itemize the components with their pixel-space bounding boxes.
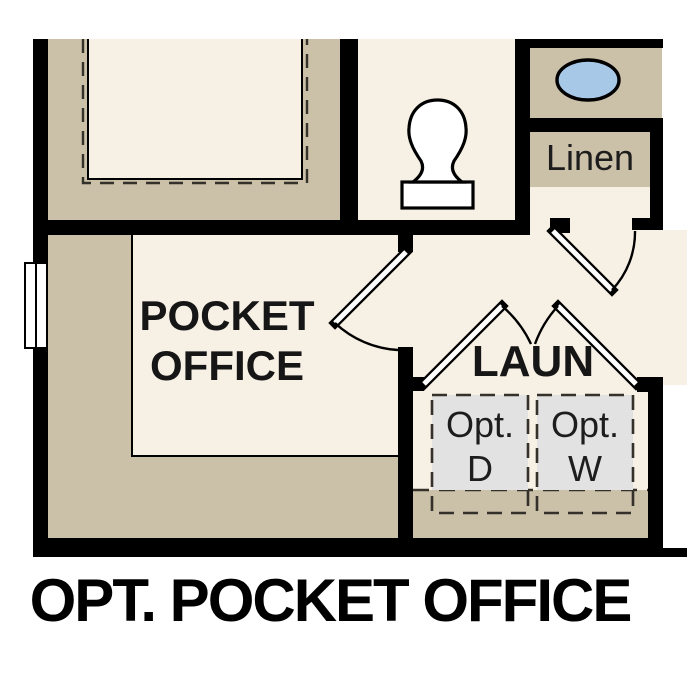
pocket-office-label-line2: OFFICE [97,341,357,391]
optional-dryer-label: Opt. D [432,395,528,499]
optional-dryer-label-line1: Opt. [446,403,514,447]
floor-plan: POCKET OFFICE LAUN Linen Opt. D Opt. W O… [0,0,687,687]
pocket-office-label-line1: POCKET [97,291,357,341]
optional-washer-label: Opt. W [537,395,633,499]
optional-washer-label-line1: Opt. [551,403,619,447]
linen-door [553,231,635,290]
sink-icon [557,60,619,100]
laundry-label: LAUN [433,340,633,384]
linen-door-swing-arc [612,231,635,290]
toilet-icon [402,100,473,208]
bedroom-dashed-outline [83,39,307,183]
linen-label: Linen [530,138,650,178]
optional-dryer-label-line2: D [467,447,493,491]
pocket-office-label: POCKET OFFICE [97,291,357,391]
linen-door-leaf [553,231,612,290]
optional-washer-label-line2: W [568,447,602,491]
plan-title: OPT. POCKET OFFICE [0,571,660,631]
